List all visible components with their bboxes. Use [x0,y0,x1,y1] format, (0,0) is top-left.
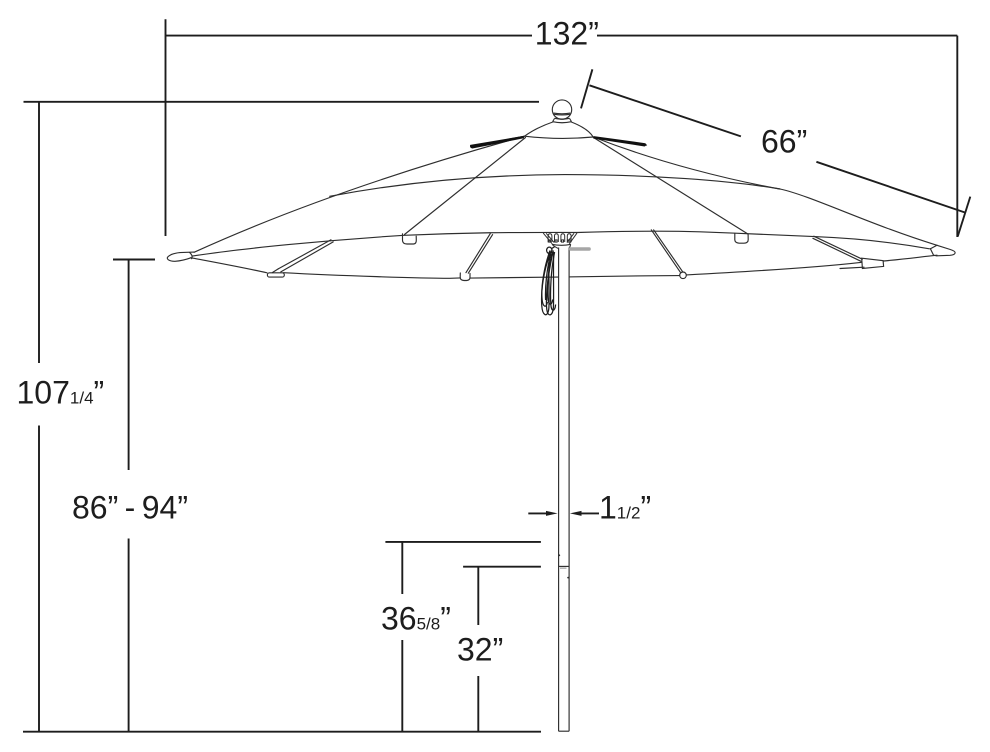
svg-text:86” - 94”: 86” - 94” [72,490,188,526]
svg-text:66”: 66” [761,124,807,160]
svg-text:365/8”: 365/8” [381,601,451,637]
svg-text:132”: 132” [535,16,599,52]
svg-text:32”: 32” [457,632,503,668]
